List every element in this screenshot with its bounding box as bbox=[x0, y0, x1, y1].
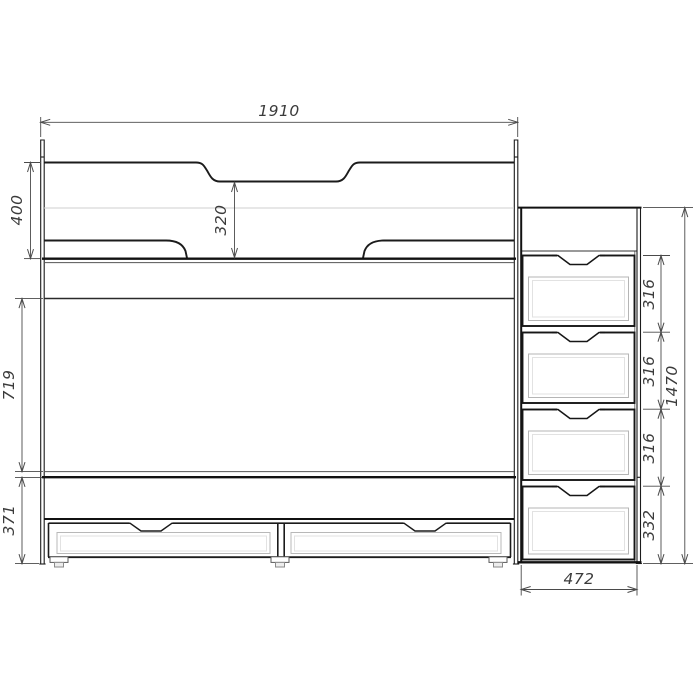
drawer-divider bbox=[278, 523, 284, 557]
cabinet-drawers bbox=[523, 256, 635, 560]
drawer-2 bbox=[523, 333, 635, 404]
left-safety-rail bbox=[44, 241, 187, 259]
headguard-top-edge bbox=[44, 163, 514, 182]
upper-bunk bbox=[42, 163, 516, 299]
bunk-bed-technical-drawing: 1910 400 320 719 371 316 316 316 332 147… bbox=[0, 0, 700, 700]
drawing-linework bbox=[0, 0, 700, 700]
dim-base-height-label: 371 bbox=[0, 504, 18, 535]
dim-stair-total-height-label: 1470 bbox=[663, 365, 681, 406]
dim-stair-width-label: 472 bbox=[563, 570, 594, 588]
dim-guard-opening-label: 320 bbox=[212, 204, 230, 235]
lower-bunk bbox=[42, 472, 516, 567]
stair-drawer-cabinet bbox=[518, 208, 642, 564]
dim-step-2-label: 316 bbox=[640, 355, 658, 386]
drawer-3 bbox=[523, 410, 635, 481]
bed-feet bbox=[50, 557, 507, 567]
drawer-4 bbox=[523, 487, 635, 560]
right-bed-post bbox=[513, 140, 519, 564]
left-bed-post bbox=[39, 140, 45, 564]
underbed-drawer-panels bbox=[57, 533, 501, 554]
drawer-1 bbox=[523, 256, 635, 327]
dim-step-3-label: 316 bbox=[640, 432, 658, 463]
dim-headguard-height-label: 400 bbox=[8, 194, 26, 225]
dim-bunk-clearance-label: 719 bbox=[0, 369, 18, 400]
dim-step-4-label: 332 bbox=[640, 509, 658, 540]
dim-overall-length-label: 1910 bbox=[258, 102, 299, 120]
right-safety-rail bbox=[363, 241, 514, 259]
underbed-drawer-box bbox=[48, 523, 511, 557]
dim-step-1-label: 316 bbox=[640, 278, 658, 309]
